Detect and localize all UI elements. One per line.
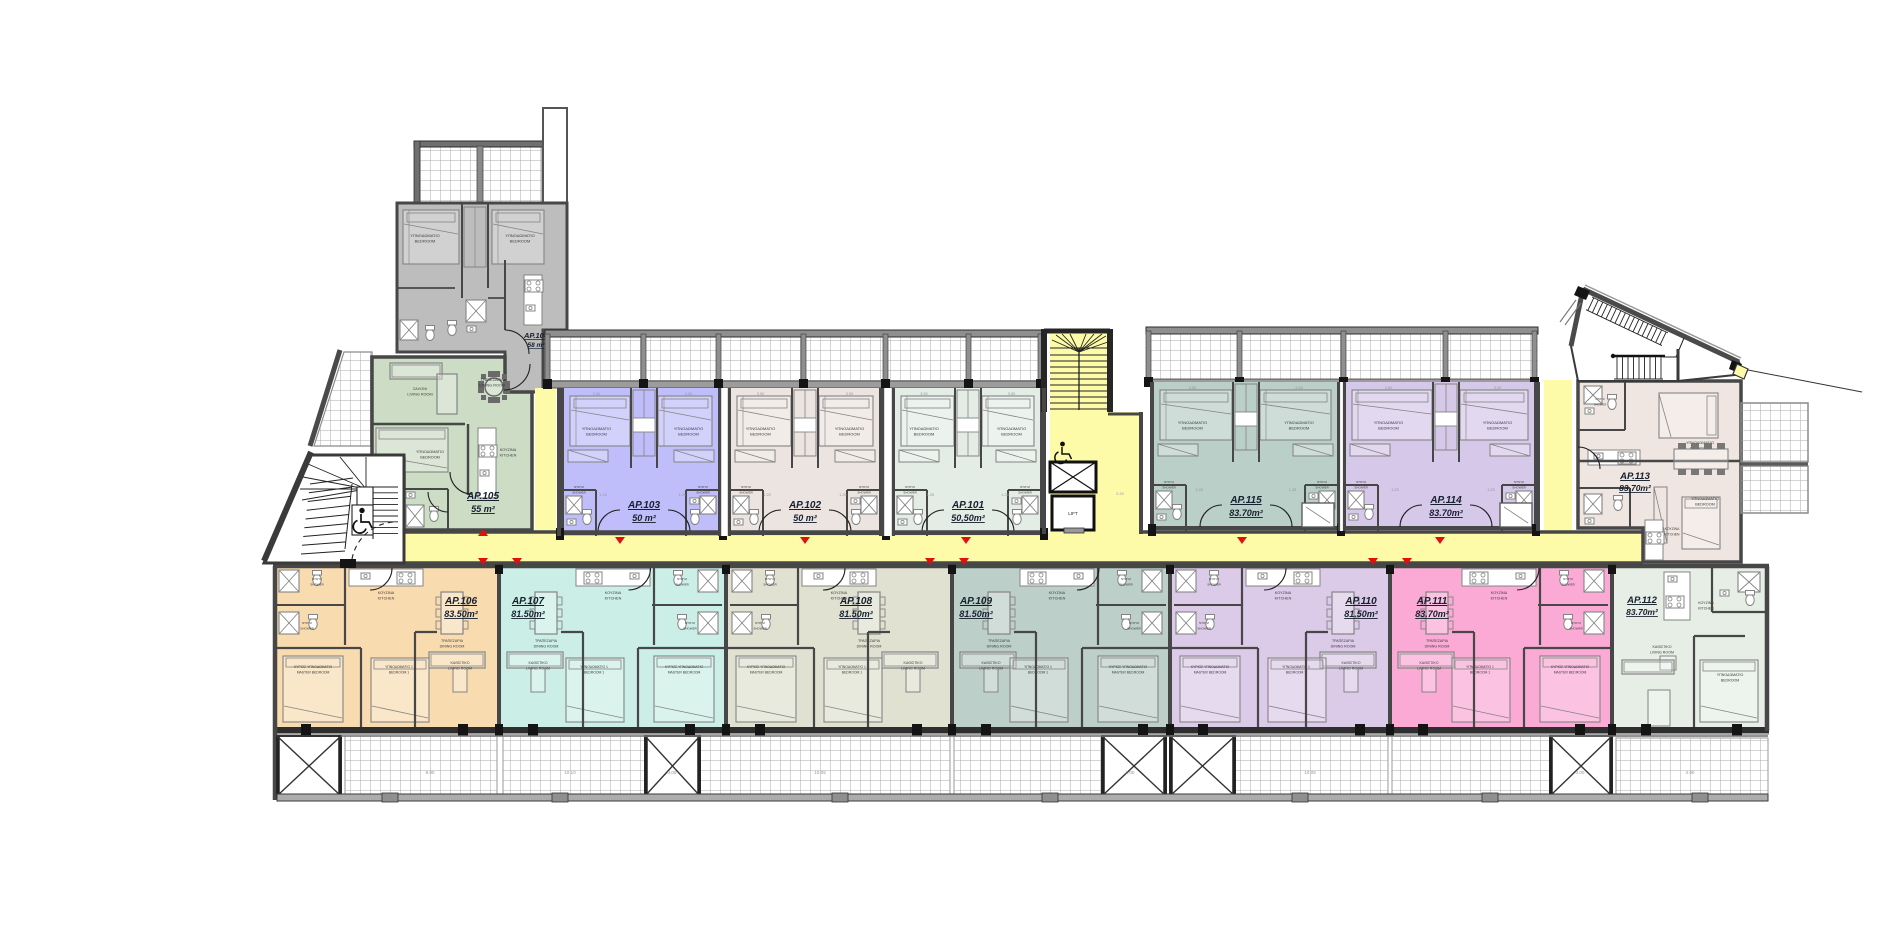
- svg-text:10.05: 10.05: [814, 770, 826, 775]
- svg-text:ΝΤΟΥΖ: ΝΤΟΥΖ: [302, 621, 312, 625]
- svg-text:ΝΤΟΥΖ: ΝΤΟΥΖ: [685, 621, 695, 625]
- svg-text:ΥΠΝΟΔΩΜΑΤΙΟ: ΥΠΝΟΔΩΜΑΤΙΟ: [909, 426, 939, 431]
- svg-text:SHOWER: SHOWER: [1197, 627, 1211, 631]
- svg-text:3.50: 3.50: [757, 392, 764, 396]
- svg-text:ΝΤΟΥΖ: ΝΤΟΥΖ: [1129, 621, 1139, 625]
- svg-text:ΝΤΟΥΖ: ΝΤΟΥΖ: [1356, 480, 1366, 484]
- svg-text:ΝΤΟΥΖ: ΝΤΟΥΖ: [1209, 577, 1219, 581]
- svg-text:1.25: 1.25: [839, 493, 846, 497]
- svg-text:BEDROOM: BEDROOM: [1378, 426, 1399, 431]
- svg-text:1.25: 1.25: [1289, 488, 1296, 492]
- svg-text:AP.102: AP.102: [788, 500, 822, 511]
- svg-text:SHOWER: SHOWER: [572, 491, 586, 495]
- svg-text:4.90: 4.90: [1686, 770, 1695, 775]
- svg-text:BEDROOM: BEDROOM: [1001, 432, 1022, 437]
- svg-text:83.70m²: 83.70m²: [1619, 483, 1652, 493]
- svg-text:KITCHEN: KITCHEN: [605, 597, 622, 601]
- svg-text:3.00: 3.00: [668, 770, 677, 775]
- svg-text:ΚΑΘΙΣΤΙΚΟ: ΚΑΘΙΣΤΙΚΟ: [1419, 661, 1438, 665]
- svg-text:ΝΤΟΥΖ: ΝΤΟΥΖ: [1199, 621, 1209, 625]
- svg-text:83.50m²: 83.50m²: [444, 609, 479, 619]
- svg-text:DINING ROOM: DINING ROOM: [534, 645, 559, 649]
- svg-text:SHOWER: SHOWER: [1018, 491, 1032, 495]
- svg-text:ΚΑΘΙΣΤΙΚΟ: ΚΑΘΙΣΤΙΚΟ: [1341, 661, 1360, 665]
- svg-text:ΥΠΝΟΔΩΜΑΤΙΟ: ΥΠΝΟΔΩΜΑΤΙΟ: [1374, 420, 1404, 425]
- svg-text:SHOWER: SHOWER: [1119, 583, 1133, 587]
- svg-text:ΚΥΡΙΟΣ ΥΠΝΟΔΩΜΑΤΙΟ: ΚΥΡΙΟΣ ΥΠΝΟΔΩΜΑΤΙΟ: [665, 665, 704, 669]
- svg-text:SHOWER: SHOWER: [739, 491, 753, 495]
- svg-text:LIVING ROOM: LIVING ROOM: [526, 667, 550, 671]
- svg-text:MASTER BEDROOM: MASTER BEDROOM: [1112, 671, 1145, 675]
- svg-text:3.50: 3.50: [1385, 386, 1392, 390]
- svg-text:10.05: 10.05: [1304, 770, 1316, 775]
- svg-text:BEDROOM 1: BEDROOM 1: [1286, 671, 1306, 675]
- svg-text:BEDROOM 1: BEDROOM 1: [1470, 671, 1490, 675]
- svg-text:SHOWER: SHOWER: [1594, 403, 1607, 407]
- svg-text:LIVING ROOM: LIVING ROOM: [901, 667, 925, 671]
- svg-text:BEDROOM: BEDROOM: [586, 432, 607, 437]
- svg-text:ΚΑΘΙΣΤΙΚΟ: ΚΑΘΙΣΤΙΚΟ: [450, 661, 469, 665]
- svg-text:83.70m²: 83.70m²: [1415, 609, 1450, 619]
- svg-text:ΚΑΘΙΣΤΙΚΟ: ΚΑΘΙΣΤΙΚΟ: [981, 661, 1000, 665]
- svg-text:BEDROOM: BEDROOM: [750, 432, 771, 437]
- svg-text:1.25: 1.25: [1195, 488, 1202, 492]
- svg-text:ΚΑΘΙΣΤΙΚΟ: ΚΑΘΙΣΤΙΚΟ: [528, 661, 547, 665]
- svg-text:MASTER BEDROOM: MASTER BEDROOM: [668, 671, 701, 675]
- svg-text:BEDROOM: BEDROOM: [510, 239, 531, 244]
- svg-text:3.00: 3.00: [1576, 770, 1585, 775]
- svg-text:BEDROOM 1: BEDROOM 1: [584, 671, 604, 675]
- svg-text:BEDROOM: BEDROOM: [839, 432, 860, 437]
- svg-text:1.25: 1.25: [1001, 493, 1008, 497]
- svg-text:SHOWER: SHOWER: [675, 583, 689, 587]
- svg-text:ΚΑΘΙΣΤΙΚΟ: ΚΑΘΙΣΤΙΚΟ: [903, 661, 922, 665]
- svg-text:83.70m²: 83.70m²: [1229, 508, 1264, 518]
- svg-text:ΥΠΝΟΔΩΜΑΤΙΟ 1: ΥΠΝΟΔΩΜΑΤΙΟ 1: [838, 665, 866, 669]
- svg-text:ΝΤΟΥΖ: ΝΤΟΥΖ: [574, 485, 584, 489]
- svg-text:ΚΟΥΖΙΝΑ: ΚΟΥΖΙΝΑ: [500, 448, 517, 452]
- svg-text:ΥΠΝΟΔΩΜΑΤΙΟ: ΥΠΝΟΔΩΜΑΤΙΟ: [582, 426, 612, 431]
- svg-text:DINING ROOM: DINING ROOM: [479, 384, 505, 388]
- svg-text:ΥΠΝΟΔΩΜΑΤΙΟ: ΥΠΝΟΔΩΜΑΤΙΟ: [1717, 673, 1744, 677]
- svg-text:58 m²: 58 m²: [528, 342, 546, 349]
- svg-text:3.50: 3.50: [593, 392, 600, 396]
- svg-text:2.20: 2.20: [1116, 492, 1123, 496]
- svg-text:SHOWER: SHOWER: [763, 583, 777, 587]
- svg-text:LIVING ROOM: LIVING ROOM: [407, 393, 432, 397]
- svg-text:BEDROOM 1: BEDROOM 1: [1028, 671, 1048, 675]
- svg-text:ΝΤΟΥΖ: ΝΤΟΥΖ: [1317, 480, 1327, 484]
- svg-text:KITCHEN: KITCHEN: [500, 454, 517, 458]
- svg-text:LIFT: LIFT: [1068, 511, 1078, 516]
- svg-text:DINING ROOM: DINING ROOM: [987, 645, 1012, 649]
- svg-text:KITCHEN: KITCHEN: [1491, 597, 1508, 601]
- svg-text:ΝΤΟΥΖ: ΝΤΟΥΖ: [1121, 577, 1131, 581]
- svg-text:ΝΤΟΥΖ: ΝΤΟΥΖ: [312, 577, 322, 581]
- svg-text:SHOWER: SHOWER: [903, 491, 917, 495]
- svg-text:AP.103: AP.103: [627, 500, 661, 511]
- svg-text:KITCHEN: KITCHEN: [378, 597, 395, 601]
- svg-text:ΤΡΑΠΕΖΑΡΙΑ: ΤΡΑΠΕΖΑΡΙΑ: [535, 639, 558, 643]
- svg-text:ΤΡΑΠΕΖΑΡΙΑ: ΤΡΑΠΕΖΑΡΙΑ: [480, 378, 504, 382]
- svg-text:3.50: 3.50: [846, 392, 853, 396]
- svg-text:81.50m²: 81.50m²: [959, 609, 994, 619]
- svg-text:ΝΤΟΥΖ: ΝΤΟΥΖ: [905, 485, 915, 489]
- svg-text:3.50: 3.50: [1295, 386, 1302, 390]
- svg-text:3.00: 3.00: [1126, 770, 1135, 775]
- svg-text:81.50m²: 81.50m²: [511, 609, 546, 619]
- svg-text:ΝΤΟΥΖ: ΝΤΟΥΖ: [1595, 397, 1605, 401]
- svg-text:LIVING ROOM: LIVING ROOM: [1650, 651, 1674, 655]
- svg-text:ΚΥΡΙΟΣ ΥΠΝΟΔΩΜΑΤΙΟ: ΚΥΡΙΟΣ ΥΠΝΟΔΩΜΑΤΙΟ: [1191, 665, 1230, 669]
- svg-text:SHOWER: SHOWER: [683, 627, 697, 631]
- svg-text:DINING ROOM: DINING ROOM: [1331, 645, 1356, 649]
- svg-text:SHOWER: SHOWER: [1569, 627, 1583, 631]
- svg-text:AP.115: AP.115: [1229, 495, 1262, 506]
- svg-text:AP.111: AP.111: [1416, 596, 1448, 607]
- svg-text:ΚΑΘΙΣΤΙΚΟ: ΚΑΘΙΣΤΙΚΟ: [1652, 645, 1671, 649]
- svg-text:ΚΥΡΙΟΣ ΥΠΝΟΔΩΜΑΤΙΟ: ΚΥΡΙΟΣ ΥΠΝΟΔΩΜΑΤΙΟ: [294, 665, 333, 669]
- svg-text:ΝΤΟΥΖ: ΝΤΟΥΖ: [755, 621, 765, 625]
- svg-text:MASTER BEDROOM: MASTER BEDROOM: [297, 671, 330, 675]
- svg-text:SHOWER: SHOWER: [1127, 627, 1141, 631]
- svg-text:ΚΟΥΖΙΝΑ: ΚΟΥΖΙΝΑ: [1275, 591, 1292, 595]
- svg-text:50 m²: 50 m²: [793, 513, 818, 523]
- svg-text:MASTER BEDROOM: MASTER BEDROOM: [750, 671, 783, 675]
- svg-text:ΥΠΝΟΔΩΜΑΤΙΟ: ΥΠΝΟΔΩΜΑΤΙΟ: [1284, 420, 1314, 425]
- svg-text:ΥΠΝΟΔΩΜΑΤΙΟ: ΥΠΝΟΔΩΜΑΤΙΟ: [505, 233, 535, 238]
- svg-text:ΝΤΟΥΖ: ΝΤΟΥΖ: [698, 485, 708, 489]
- svg-text:ΤΡΑΠΕΖΑΡΙΑ: ΤΡΑΠΕΖΑΡΙΑ: [858, 639, 881, 643]
- svg-text:ΥΠΝΟΔΩΜΑΤΙΟ: ΥΠΝΟΔΩΜΑΤΙΟ: [1178, 420, 1208, 425]
- svg-text:1.25: 1.25: [1487, 488, 1494, 492]
- svg-text:ΝΤΟΥΖ: ΝΤΟΥΖ: [1571, 621, 1581, 625]
- svg-text:AP.109: AP.109: [959, 596, 993, 607]
- svg-text:1.25: 1.25: [599, 493, 606, 497]
- svg-text:ΥΠΝΟΔΩΜΑΤΙΟ: ΥΠΝΟΔΩΜΑΤΙΟ: [416, 450, 444, 454]
- svg-text:1.25: 1.25: [1391, 488, 1398, 492]
- svg-text:3.50: 3.50: [1008, 392, 1015, 396]
- svg-text:ΥΠΝΟΔΩΜΑΤΙΟ: ΥΠΝΟΔΩΜΑΤΙΟ: [1483, 420, 1513, 425]
- svg-text:ΝΤΟΥΖ: ΝΤΟΥΖ: [1563, 577, 1573, 581]
- svg-text:LIVING ROOM: LIVING ROOM: [1339, 667, 1363, 671]
- svg-text:ΥΠΝΟΔΩΜΑΤΙΟ 1: ΥΠΝΟΔΩΜΑΤΙΟ 1: [580, 665, 608, 669]
- svg-text:ΣΑΛΟΝΙ: ΣΑΛΟΝΙ: [413, 387, 427, 391]
- svg-text:SHOWER: SHOWER: [1162, 486, 1176, 490]
- svg-text:BEDROOM: BEDROOM: [1182, 426, 1203, 431]
- svg-text:SHOWER: SHOWER: [753, 627, 767, 631]
- svg-text:AP.106: AP.106: [444, 596, 478, 607]
- svg-text:ΝΤΟΥΖ: ΝΤΟΥΖ: [859, 485, 869, 489]
- svg-text:ΥΠΝΟΔΩΜΑΤΙΟ: ΥΠΝΟΔΩΜΑΤΙΟ: [410, 233, 440, 238]
- svg-text:SHOWER: SHOWER: [1561, 583, 1575, 587]
- svg-text:SHOWER: SHOWER: [1315, 486, 1329, 490]
- svg-text:3.50: 3.50: [1494, 386, 1501, 390]
- svg-text:3.50: 3.50: [685, 392, 692, 396]
- svg-text:50 m²: 50 m²: [632, 513, 657, 523]
- svg-text:BEDROOM: BEDROOM: [1721, 679, 1740, 683]
- svg-text:ΚΟΥΖΙΝΑ: ΚΟΥΖΙΝΑ: [605, 591, 622, 595]
- svg-text:AP.107: AP.107: [511, 596, 545, 607]
- svg-text:AP.108: AP.108: [839, 596, 873, 607]
- svg-text:50,50m²: 50,50m²: [951, 513, 986, 523]
- svg-text:ΝΤΟΥΖ: ΝΤΟΥΖ: [1020, 485, 1030, 489]
- svg-text:LIVING ROOM: LIVING ROOM: [979, 667, 1003, 671]
- svg-text:MASTER BEDROOM: MASTER BEDROOM: [1554, 671, 1587, 675]
- svg-text:3.50: 3.50: [920, 392, 927, 396]
- svg-text:LIVING ROOM: LIVING ROOM: [448, 667, 472, 671]
- svg-text:83.70m²: 83.70m²: [1429, 508, 1464, 518]
- svg-text:3.50: 3.50: [1189, 386, 1196, 390]
- svg-text:1.25: 1.25: [678, 493, 685, 497]
- svg-text:BEDROOM: BEDROOM: [1695, 503, 1715, 507]
- svg-text:ΤΡΑΠΕΖΑΡΙΑ: ΤΡΑΠΕΖΑΡΙΑ: [1426, 639, 1449, 643]
- svg-text:AP.105: AP.105: [466, 491, 500, 502]
- svg-text:ΤΡΑΠΕΖΑΡΙΑ: ΤΡΑΠΕΖΑΡΙΑ: [1332, 639, 1355, 643]
- svg-text:BEDROOM 1: BEDROOM 1: [389, 671, 409, 675]
- svg-text:DINING ROOM: DINING ROOM: [440, 645, 465, 649]
- svg-text:BEDROOM: BEDROOM: [914, 432, 935, 437]
- svg-text:8.90: 8.90: [426, 770, 435, 775]
- svg-text:SHOWER: SHOWER: [1207, 583, 1221, 587]
- svg-text:ΤΡΑΠΕΖΑΡΙΑ: ΤΡΑΠΕΖΑΡΙΑ: [441, 639, 464, 643]
- svg-text:55 m²: 55 m²: [471, 504, 496, 514]
- svg-text:BEDROOM: BEDROOM: [678, 432, 699, 437]
- svg-text:ΚΟΥΖΙΝΑ: ΚΟΥΖΙΝΑ: [1665, 527, 1680, 531]
- svg-text:ΥΠΝΟΔΩΜΑΤΙΟ 1: ΥΠΝΟΔΩΜΑΤΙΟ 1: [385, 665, 413, 669]
- svg-text:10.10: 10.10: [564, 770, 576, 775]
- svg-text:AP.101: AP.101: [951, 500, 985, 511]
- svg-text:ΥΠΝΟΔΩΜΑΤΙΟ: ΥΠΝΟΔΩΜΑΤΙΟ: [835, 426, 865, 431]
- svg-text:SHOWER: SHOWER: [1512, 486, 1526, 490]
- svg-text:ΥΠΝΟΔΩΜΑΤΙΟ: ΥΠΝΟΔΩΜΑΤΙΟ: [997, 426, 1027, 431]
- svg-text:ΝΤΟΥΖ: ΝΤΟΥΖ: [1164, 480, 1174, 484]
- svg-text:SHOWER: SHOWER: [1354, 486, 1368, 490]
- svg-text:AP.114: AP.114: [1429, 495, 1462, 506]
- svg-text:AP.112: AP.112: [1626, 595, 1657, 606]
- svg-text:LIVING ROOM: LIVING ROOM: [1417, 667, 1441, 671]
- svg-text:ΥΠΝΟΔΩΜΑΤΙΟ: ΥΠΝΟΔΩΜΑΤΙΟ: [746, 426, 776, 431]
- svg-text:81.50m²: 81.50m²: [1344, 609, 1379, 619]
- svg-text:ΝΤΟΥΖ: ΝΤΟΥΖ: [741, 485, 751, 489]
- svg-text:1.25: 1.25: [927, 493, 934, 497]
- svg-text:ΚΥΡΙΟΣ ΥΠΝΟΔΩΜΑΤΙΟ: ΚΥΡΙΟΣ ΥΠΝΟΔΩΜΑΤΙΟ: [1551, 665, 1590, 669]
- svg-text:SHOWER: SHOWER: [310, 583, 324, 587]
- svg-text:ΥΠΝΟΔΩΜΑΤΙΟ: ΥΠΝΟΔΩΜΑΤΙΟ: [1691, 497, 1719, 501]
- svg-text:BEDROOM: BEDROOM: [420, 456, 440, 460]
- svg-text:ΚΟΥΖΙΝΑ: ΚΟΥΖΙΝΑ: [378, 591, 395, 595]
- svg-text:ΝΤΟΥΖ: ΝΤΟΥΖ: [1514, 480, 1524, 484]
- svg-text:ΤΡΑΠΕΖΑΡΙΑ: ΤΡΑΠΕΖΑΡΙΑ: [988, 639, 1011, 643]
- svg-text:SHOWER: SHOWER: [696, 491, 710, 495]
- svg-text:BEDROOM 1: BEDROOM 1: [842, 671, 862, 675]
- svg-text:AP.113: AP.113: [1619, 471, 1650, 482]
- svg-text:SHOWER: SHOWER: [300, 627, 314, 631]
- svg-text:ΚΥΡΙΟΣ ΥΠΝΟΔΩΜΑΤΙΟ: ΚΥΡΙΟΣ ΥΠΝΟΔΩΜΑΤΙΟ: [747, 665, 786, 669]
- svg-text:1.25: 1.25: [763, 493, 770, 497]
- svg-text:MASTER BEDROOM: MASTER BEDROOM: [1194, 671, 1227, 675]
- svg-text:BEDROOM: BEDROOM: [415, 239, 436, 244]
- svg-text:ΝΤΟΥΖ: ΝΤΟΥΖ: [677, 577, 687, 581]
- svg-text:DINING ROOM: DINING ROOM: [1425, 645, 1450, 649]
- svg-text:BEDROOM: BEDROOM: [1487, 426, 1508, 431]
- svg-text:ΥΠΝΟΔΩΜΑΤΙΟ: ΥΠΝΟΔΩΜΑΤΙΟ: [674, 426, 704, 431]
- svg-text:KITCHEN: KITCHEN: [1049, 597, 1066, 601]
- svg-text:ΚΥΡΙΟΣ ΥΠΝΟΔΩΜΑΤΙΟ: ΚΥΡΙΟΣ ΥΠΝΟΔΩΜΑΤΙΟ: [1109, 665, 1148, 669]
- svg-text:ΥΠΝΟΔΩΜΑΤΙΟ 1: ΥΠΝΟΔΩΜΑΤΙΟ 1: [1024, 665, 1052, 669]
- svg-text:ΚΟΥΖΙΝΑ: ΚΟΥΖΙΝΑ: [1491, 591, 1508, 595]
- svg-text:AP.110: AP.110: [1344, 596, 1377, 607]
- svg-text:ΚΟΥΖΙΝΑ: ΚΟΥΖΙΝΑ: [831, 591, 848, 595]
- svg-text:83.70m²: 83.70m²: [1626, 607, 1659, 617]
- svg-text:81.50m²: 81.50m²: [839, 609, 874, 619]
- svg-text:BEDROOM: BEDROOM: [1289, 426, 1310, 431]
- svg-text:ΥΠΝΟΔΩΜΑΤΙΟ 1: ΥΠΝΟΔΩΜΑΤΙΟ 1: [1466, 665, 1494, 669]
- svg-text:KITCHEN: KITCHEN: [1275, 597, 1292, 601]
- svg-text:ΚΟΥΖΙΝΑ: ΚΟΥΖΙΝΑ: [1049, 591, 1066, 595]
- svg-text:KITCHEN: KITCHEN: [1665, 533, 1680, 537]
- svg-text:ΝΤΟΥΖ: ΝΤΟΥΖ: [765, 577, 775, 581]
- svg-text:SHOWER: SHOWER: [857, 491, 871, 495]
